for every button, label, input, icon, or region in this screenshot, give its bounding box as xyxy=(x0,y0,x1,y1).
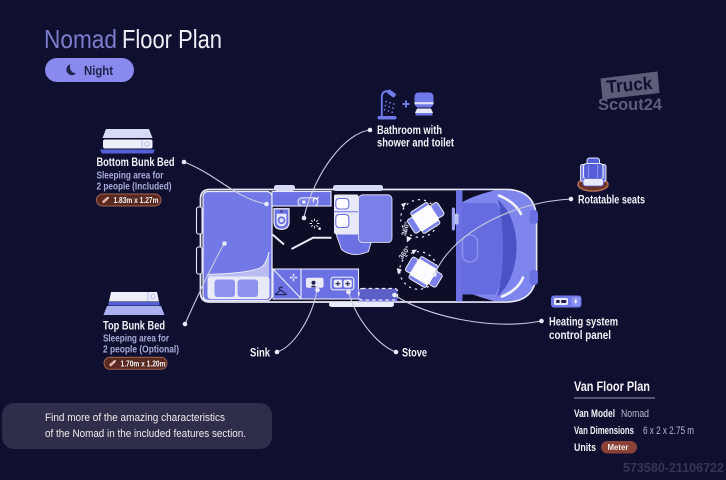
svg-text:Find more of the amazing chara: Find more of the amazing characteristics xyxy=(45,412,225,424)
svg-text:Top Bunk Bed: Top Bunk Bed xyxy=(103,319,165,333)
svg-text:Nomad: Nomad xyxy=(621,408,649,420)
svg-text:Night: Night xyxy=(84,63,114,78)
svg-text:Floor Plan: Floor Plan xyxy=(122,24,222,54)
svg-text:Nomad: Nomad xyxy=(44,24,117,54)
svg-text:Rotatable seats: Rotatable seats xyxy=(578,193,645,207)
svg-text:Van Dimensions: Van Dimensions xyxy=(574,425,634,437)
svg-text:2 people (Included): 2 people (Included) xyxy=(97,181,172,192)
svg-text:Sink: Sink xyxy=(250,346,270,360)
svg-text:1.83m x 1.27m: 1.83m x 1.27m xyxy=(114,196,159,205)
svg-text:Truck: Truck xyxy=(606,73,655,97)
svg-text:573580-21106722: 573580-21106722 xyxy=(623,460,724,475)
svg-text:Meter: Meter xyxy=(608,443,629,452)
svg-text:of the Nomad in the included f: of the Nomad in the included features se… xyxy=(45,428,246,440)
svg-text:6 x 2 x 2.75 m: 6 x 2 x 2.75 m xyxy=(643,425,694,437)
svg-text:Stove: Stove xyxy=(402,346,427,360)
svg-text:Van Model: Van Model xyxy=(574,408,615,420)
svg-text:control panel: control panel xyxy=(549,328,611,342)
svg-text:1.70m x 1.20m: 1.70m x 1.20m xyxy=(121,360,166,369)
svg-text:2 people (Optional): 2 people (Optional) xyxy=(103,344,179,355)
svg-text:Sleeping area for: Sleeping area for xyxy=(97,170,164,181)
svg-text:Heating system: Heating system xyxy=(549,315,618,329)
svg-text:Bottom Bunk Bed: Bottom Bunk Bed xyxy=(97,155,175,169)
svg-text:Scout24: Scout24 xyxy=(598,95,663,114)
svg-text:Van Floor Plan: Van Floor Plan xyxy=(574,379,650,394)
svg-text:shower and toilet: shower and toilet xyxy=(377,136,454,150)
svg-text:Sleeping area for: Sleeping area for xyxy=(103,333,169,344)
svg-text:Units: Units xyxy=(574,442,596,454)
